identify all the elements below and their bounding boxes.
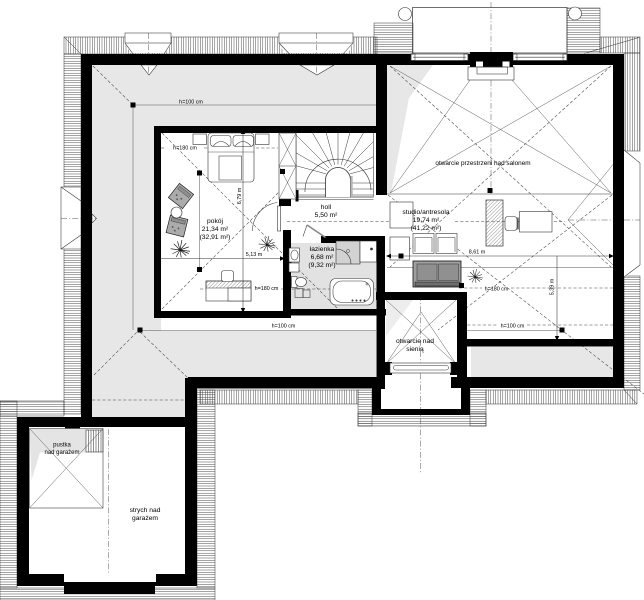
svg-text:pustka: pustka [53, 443, 71, 449]
svg-text:holl: holl [321, 204, 332, 211]
svg-text:h=180 cm: h=180 cm [173, 146, 197, 152]
svg-text:(41,22 m²): (41,22 m²) [411, 225, 442, 232]
svg-text:6,79 m: 6,79 m [237, 187, 243, 204]
svg-text:5,50 m²: 5,50 m² [315, 212, 338, 219]
svg-text:h=100 cm: h=100 cm [272, 324, 296, 330]
svg-text:h=100 cm: h=100 cm [501, 324, 525, 330]
svg-text:5,13 m: 5,13 m [246, 252, 263, 258]
svg-text:(9,32 m²): (9,32 m²) [308, 262, 335, 269]
svg-text:5,39 m: 5,39 m [550, 278, 556, 295]
svg-text:6,68 m²: 6,68 m² [311, 254, 334, 261]
svg-text:8,61 m: 8,61 m [469, 250, 486, 256]
svg-text:19,74 m²: 19,74 m² [413, 217, 440, 224]
svg-text:studio/antresola: studio/antresola [402, 209, 449, 216]
svg-text:otwarcie przestrzeni nad salon: otwarcie przestrzeni nad salonem [435, 160, 530, 167]
svg-text:otwarcie nad: otwarcie nad [396, 338, 434, 345]
svg-text:h=100 cm: h=100 cm [179, 100, 203, 106]
svg-text:łazienka: łazienka [310, 246, 335, 253]
svg-text:pokój: pokój [207, 218, 224, 225]
svg-text:h=180 cm: h=180 cm [255, 286, 279, 292]
svg-text:h=180 cm: h=180 cm [485, 287, 509, 293]
svg-text:21,34 m²: 21,34 m² [202, 226, 229, 233]
svg-text:garażem: garażem [132, 515, 158, 522]
svg-text:(32,91 m²): (32,91 m²) [200, 234, 231, 241]
svg-text:nad garażem: nad garażem [44, 450, 79, 456]
svg-text:strych nad: strych nad [130, 507, 161, 514]
svg-text:sienią: sienią [406, 346, 424, 353]
